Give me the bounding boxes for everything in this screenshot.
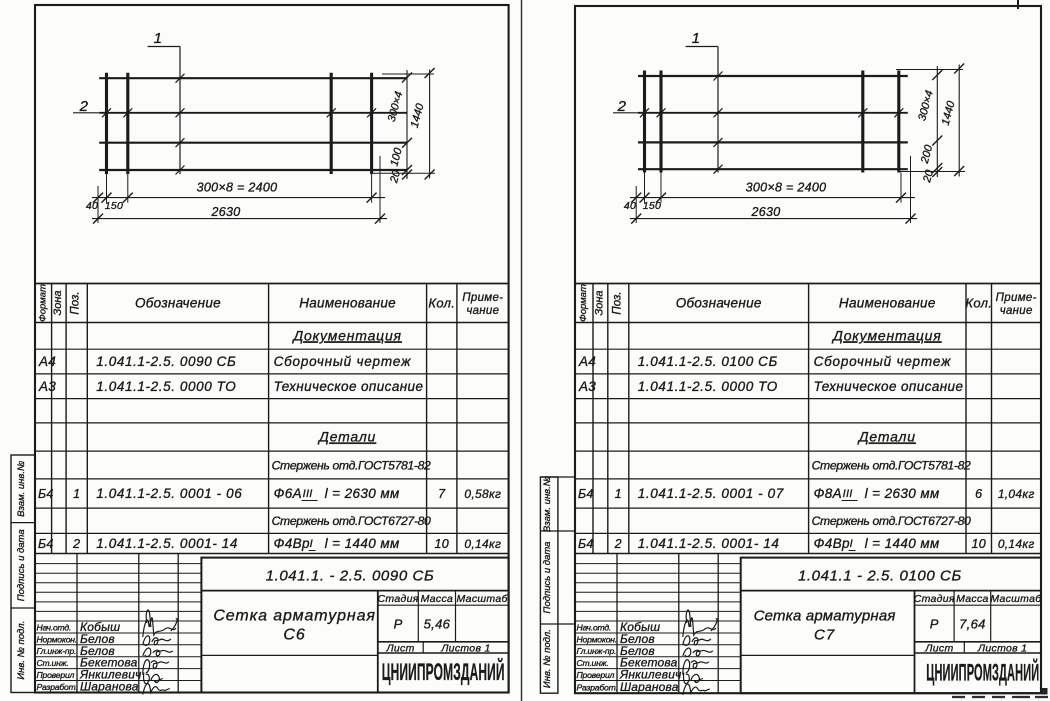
svg-text:1.041.1-2.5. 0000 ТО: 1.041.1-2.5. 0000 ТО <box>96 379 236 394</box>
svg-text:Разработ.: Разработ. <box>37 682 78 692</box>
svg-text:Стержень отд.ГОСТ5781-82: Стержень отд.ГОСТ5781-82 <box>812 459 971 473</box>
svg-text:l = 2630 мм: l = 2630 мм <box>325 486 400 501</box>
svg-text:0,14кг: 0,14кг <box>464 537 501 551</box>
svg-text:Лист: Лист <box>385 642 414 654</box>
svg-text:1.041.1-2.5. 0090 СБ: 1.041.1-2.5. 0090 СБ <box>96 354 236 369</box>
svg-text:2630: 2630 <box>750 205 780 219</box>
svg-text:чание: чание <box>1000 305 1033 317</box>
svg-text:Техническое описание: Техническое описание <box>814 379 964 394</box>
svg-text:1.041.1-2.5. 0001- 14: 1.041.1-2.5. 0001- 14 <box>638 536 780 551</box>
svg-text:1.041.1. - 2.5. 0090 СБ: 1.041.1. - 2.5. 0090 СБ <box>266 568 435 585</box>
svg-text:I: I <box>850 538 853 550</box>
svg-text:Подпись и дата: Подпись и дата <box>16 529 27 601</box>
svg-text:300×8 = 2400: 300×8 = 2400 <box>197 181 278 195</box>
svg-text:40: 40 <box>86 200 98 212</box>
svg-text:Кол.: Кол. <box>428 296 455 311</box>
svg-text:2630: 2630 <box>210 205 240 219</box>
svg-text:Инв. № подл.: Инв. № подл. <box>16 621 27 680</box>
svg-text:1.041.1-2.5. 0001 - 06: 1.041.1-2.5. 0001 - 06 <box>96 486 242 501</box>
svg-text:300×8 = 2400: 300×8 = 2400 <box>746 181 827 195</box>
svg-text:Шаранова: Шаранова <box>80 680 139 694</box>
svg-text:А3: А3 <box>38 379 56 394</box>
svg-text:1.041.1-2.5. 0001 - 07: 1.041.1-2.5. 0001 - 07 <box>638 486 784 501</box>
svg-text:0,58кг: 0,58кг <box>464 487 501 501</box>
svg-text:Проверил: Проверил <box>577 670 615 680</box>
svg-text:Подпись и дата: Подпись и дата <box>542 542 553 614</box>
svg-text:Гл.инж-пр.: Гл.инж-пр. <box>577 646 617 656</box>
svg-text:Ст.инж.: Ст.инж. <box>37 658 69 668</box>
svg-text:Поз.: Поз. <box>611 291 623 314</box>
svg-text:С7: С7 <box>814 627 835 644</box>
svg-text:7: 7 <box>438 487 446 501</box>
svg-text:1: 1 <box>692 30 701 47</box>
svg-text:150: 150 <box>105 200 123 212</box>
svg-text:Ст.инж.: Ст.инж. <box>577 658 609 668</box>
svg-text:10: 10 <box>972 537 987 551</box>
svg-text:Б4: Б4 <box>578 537 594 551</box>
svg-text:Формат: Формат <box>578 284 589 322</box>
svg-text:Стадия: Стадия <box>914 593 955 605</box>
svg-text:1,04кг: 1,04кг <box>998 487 1035 501</box>
svg-text:А3: А3 <box>578 379 596 394</box>
svg-text:Наименование: Наименование <box>299 296 396 311</box>
svg-text:Взам. инв.№: Взам. инв.№ <box>542 476 553 532</box>
svg-text:III: III <box>843 488 853 500</box>
svg-text:Поз.: Поз. <box>70 291 82 314</box>
svg-text:l = 2630 мм: l = 2630 мм <box>865 486 940 501</box>
svg-text:Сборочный чертеж: Сборочный чертеж <box>814 354 952 369</box>
svg-text:III: III <box>303 488 313 500</box>
svg-text:2: 2 <box>72 537 80 551</box>
svg-text:2: 2 <box>614 537 622 551</box>
svg-text:Лист: Лист <box>924 642 953 654</box>
svg-text:Нормокон.: Нормокон. <box>577 634 618 644</box>
svg-text:А4: А4 <box>38 354 56 369</box>
svg-text:Инв. № подл.: Инв. № подл. <box>542 629 553 688</box>
svg-text:Приме-: Приме- <box>462 292 503 304</box>
svg-text:Зона: Зона <box>52 290 64 315</box>
svg-text:Ф4Вр: Ф4Вр <box>814 536 850 551</box>
svg-text:Обозначение: Обозначение <box>135 296 221 311</box>
svg-text:чание: чание <box>466 305 499 317</box>
svg-text:1.041.1 - 2.5. 0100 СБ: 1.041.1 - 2.5. 0100 СБ <box>798 568 962 585</box>
svg-text:Сборочный чертеж: Сборочный чертеж <box>274 354 412 369</box>
svg-text:1: 1 <box>615 487 622 501</box>
svg-text:Стадия: Стадия <box>378 593 419 605</box>
svg-text:Формат: Формат <box>37 284 48 322</box>
svg-text:Детали: Детали <box>857 429 916 445</box>
svg-text:1.041.1-2.5. 0100 СБ: 1.041.1-2.5. 0100 СБ <box>638 354 778 369</box>
svg-text:6: 6 <box>975 487 982 501</box>
svg-text:0,14кг: 0,14кг <box>998 537 1035 551</box>
svg-text:Стержень отд.ГОСТ5781-82: Стержень отд.ГОСТ5781-82 <box>272 459 431 473</box>
svg-text:Стержень отд.ГОСТ6727-80: Стержень отд.ГОСТ6727-80 <box>272 514 431 528</box>
svg-text:Разработ.: Разработ. <box>577 682 618 692</box>
svg-text:Б4: Б4 <box>38 537 54 551</box>
svg-text:I: I <box>310 538 313 550</box>
svg-text:Шаранова: Шаранова <box>620 680 679 694</box>
svg-text:Масса: Масса <box>421 593 454 605</box>
svg-text:Ф4Вр: Ф4Вр <box>274 536 310 551</box>
svg-text:1.041.1-2.5. 0000 ТО: 1.041.1-2.5. 0000 ТО <box>638 379 778 394</box>
svg-text:Документация: Документация <box>291 327 402 343</box>
svg-text:Б4: Б4 <box>578 487 594 501</box>
svg-text:Нач.отд.: Нач.отд. <box>37 623 72 633</box>
svg-text:5,46: 5,46 <box>424 617 451 632</box>
svg-text:150: 150 <box>643 200 661 212</box>
svg-text:Документация: Документация <box>831 327 942 343</box>
svg-text:Детали: Детали <box>317 429 376 445</box>
svg-text:Листов 1: Листов 1 <box>977 642 1027 654</box>
svg-text:Сетка арматурная: Сетка арматурная <box>213 608 376 625</box>
svg-text:Масштаб: Масштаб <box>457 593 509 605</box>
svg-text:l = 1440 мм: l = 1440 мм <box>325 536 400 551</box>
svg-text:А4: А4 <box>578 354 596 369</box>
svg-text:Наименование: Наименование <box>839 296 936 311</box>
svg-text:Кол.: Кол. <box>965 296 992 311</box>
svg-text:Техническое описание: Техническое описание <box>274 379 424 394</box>
svg-text:Масштаб: Масштаб <box>990 593 1042 605</box>
svg-text:1: 1 <box>73 487 80 501</box>
svg-text:Стержень отд.ГОСТ6727-80: Стержень отд.ГОСТ6727-80 <box>812 514 971 528</box>
svg-text:Ф8А: Ф8А <box>814 486 842 501</box>
svg-text:Листов 1: Листов 1 <box>440 642 490 654</box>
svg-text:10: 10 <box>435 537 450 551</box>
svg-text:40: 40 <box>624 200 636 212</box>
svg-text:Обозначение: Обозначение <box>676 296 762 311</box>
svg-text:Сетка арматурная: Сетка арматурная <box>754 608 896 625</box>
svg-text:Проверил: Проверил <box>37 670 75 680</box>
svg-text:Зона: Зона <box>593 290 605 315</box>
svg-text:Р: Р <box>394 617 403 632</box>
svg-text:l = 1440 мм: l = 1440 мм <box>865 536 940 551</box>
svg-text:Р: Р <box>930 617 939 632</box>
svg-text:Ф6А: Ф6А <box>274 486 302 501</box>
svg-text:Гл.инж-пр.: Гл.инж-пр. <box>37 646 77 656</box>
svg-text:Приме-: Приме- <box>996 292 1037 304</box>
svg-text:Б4: Б4 <box>38 487 54 501</box>
svg-text:Нормокон.: Нормокон. <box>37 634 78 644</box>
svg-text:С6: С6 <box>283 627 305 644</box>
svg-text:1: 1 <box>154 30 163 47</box>
svg-text:Взам. инв.№: Взам. инв.№ <box>16 461 27 517</box>
svg-text:ЦНИИПРОМЗДАНИЙ: ЦНИИПРОМЗДАНИЙ <box>382 658 505 686</box>
svg-text:7,64: 7,64 <box>959 617 986 632</box>
svg-text:1.041.1-2.5. 0001- 14: 1.041.1-2.5. 0001- 14 <box>96 536 238 551</box>
svg-text:Нач.отд.: Нач.отд. <box>577 623 612 633</box>
svg-text:Масса: Масса <box>956 593 989 605</box>
svg-text:ЦНИИПРОМЗДАНИЙ: ЦНИИПРОМЗДАНИЙ <box>926 659 1039 687</box>
